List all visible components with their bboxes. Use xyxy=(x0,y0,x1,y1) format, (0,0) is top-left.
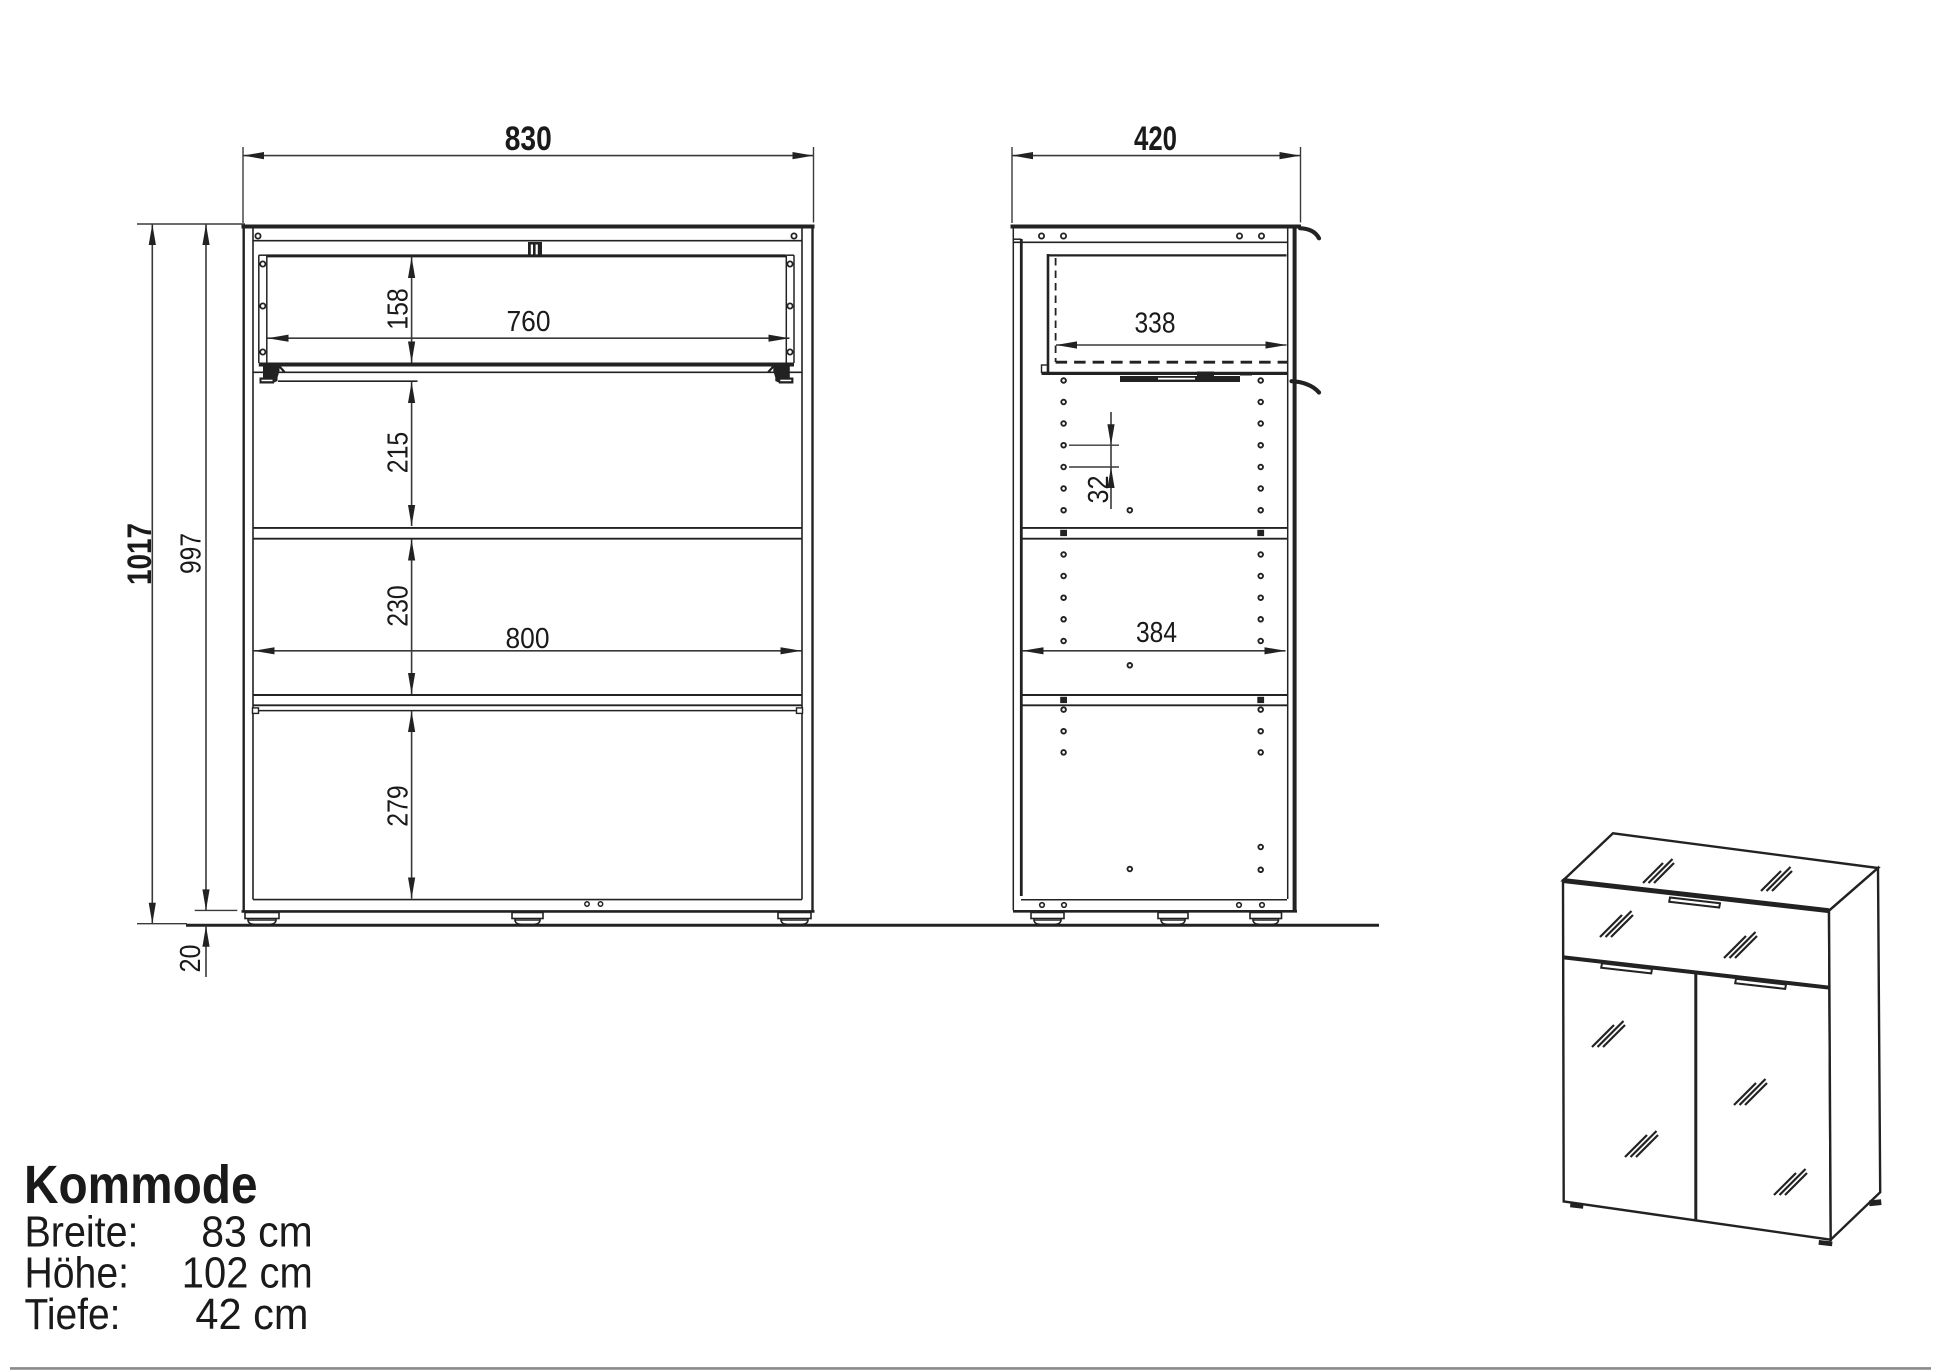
svg-text:279: 279 xyxy=(383,785,415,827)
svg-text:215: 215 xyxy=(383,432,415,474)
svg-text:830: 830 xyxy=(505,120,552,158)
svg-text:420: 420 xyxy=(1134,120,1177,158)
svg-text:Tiefe:: Tiefe: xyxy=(25,1290,121,1339)
svg-text:1017: 1017 xyxy=(121,523,159,585)
svg-text:42 cm: 42 cm xyxy=(195,1290,308,1339)
svg-text:32: 32 xyxy=(1083,476,1115,504)
svg-text:Kommode: Kommode xyxy=(24,1155,258,1215)
svg-text:997: 997 xyxy=(176,533,208,574)
svg-text:158: 158 xyxy=(383,288,415,330)
svg-text:338: 338 xyxy=(1135,308,1176,340)
svg-text:800: 800 xyxy=(506,623,550,655)
svg-text:230: 230 xyxy=(383,585,415,627)
svg-text:760: 760 xyxy=(507,306,551,338)
svg-text:384: 384 xyxy=(1136,617,1177,649)
svg-text:20: 20 xyxy=(175,945,207,973)
